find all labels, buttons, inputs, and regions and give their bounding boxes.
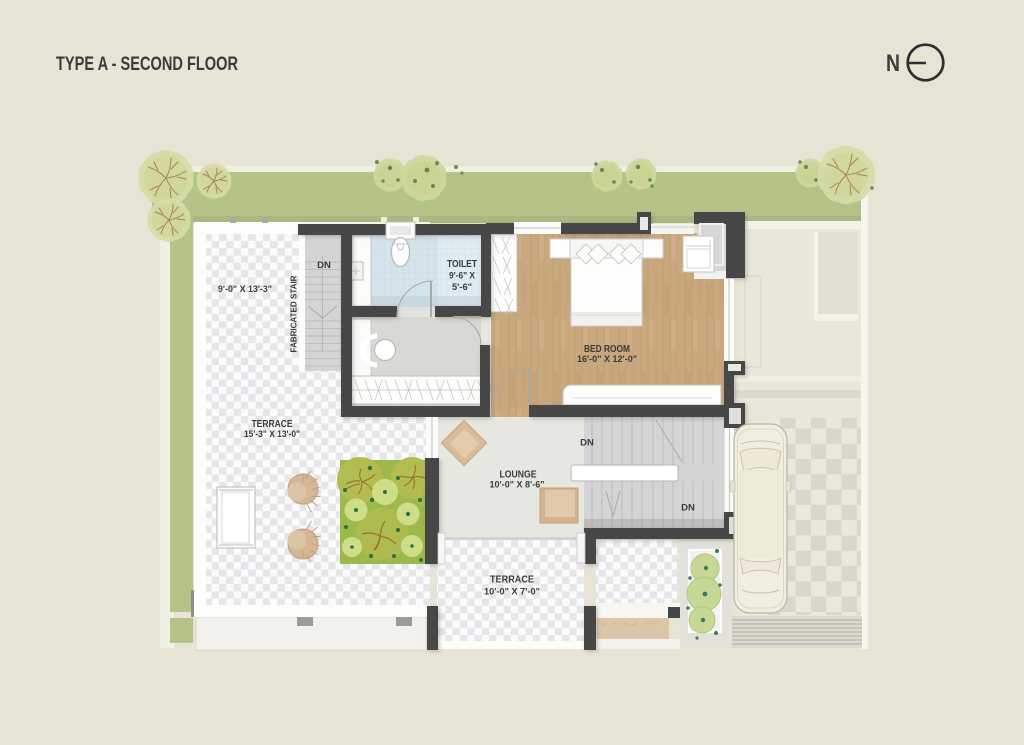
svg-text:5'-6": 5'-6"	[452, 282, 472, 293]
svg-text:DN: DN	[681, 503, 695, 514]
svg-text:9'-0" X 13'-3": 9'-0" X 13'-3"	[218, 284, 272, 295]
svg-text:10'-0" X 8'-6": 10'-0" X 8'-6"	[490, 480, 545, 491]
svg-text:DN: DN	[317, 260, 331, 271]
svg-text:16'-0" X 12'-0": 16'-0" X 12'-0"	[577, 354, 637, 365]
svg-text:DN: DN	[580, 438, 594, 449]
svg-text:9'-6" X: 9'-6" X	[449, 271, 476, 282]
svg-text:15'-3" X 13'-0": 15'-3" X 13'-0"	[244, 429, 300, 440]
svg-text:TOILET: TOILET	[447, 259, 477, 270]
svg-text:FABRICATED STAIR: FABRICATED STAIR	[289, 276, 299, 353]
svg-text:TERRACE: TERRACE	[490, 575, 534, 586]
svg-text:TYPE A - SECOND FLOOR: TYPE A - SECOND FLOOR	[56, 54, 238, 75]
svg-text:N: N	[886, 50, 900, 77]
svg-text:10'-0" X 7'-0": 10'-0" X 7'-0"	[484, 587, 540, 598]
